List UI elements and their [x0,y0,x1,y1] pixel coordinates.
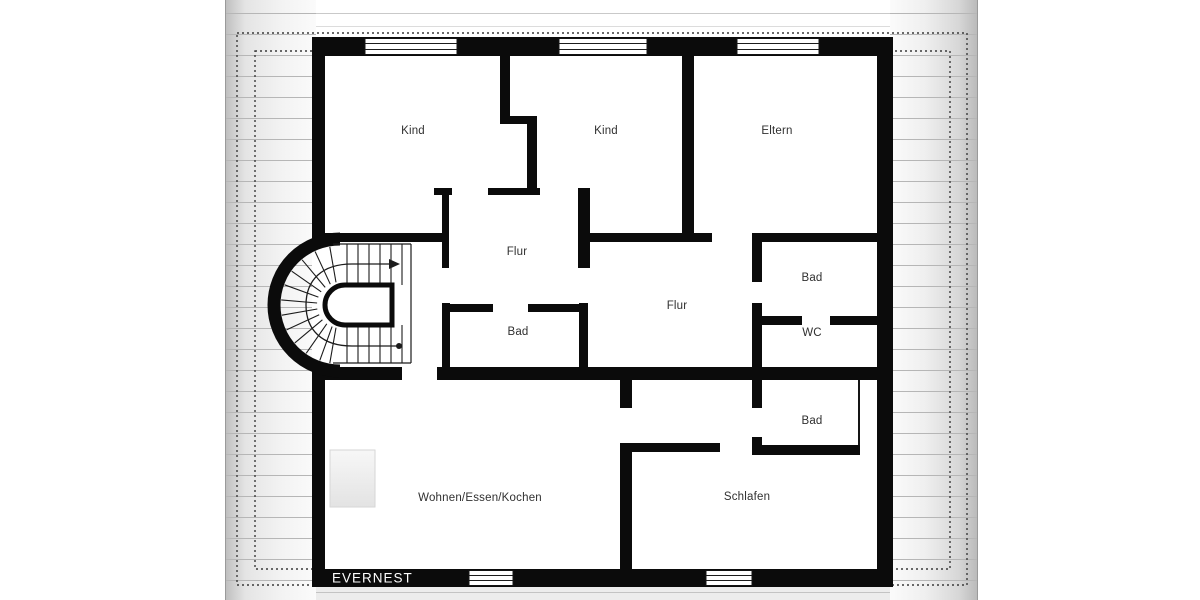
wall-bad-top-north [752,233,877,242]
room-label-wohnen: Wohnen/Essen/Kochen [418,492,542,504]
wall-wohnen-schlafen [620,443,632,569]
window-south-1 [469,571,513,586]
floorplan-drawing [0,0,1200,600]
room-label-flur-1: Flur [507,246,528,258]
room-label-bad-bottom: Bad [801,415,822,427]
wall-badbottom-south [752,445,860,455]
stair-inner-island [325,285,392,325]
wall-flur1-east [578,188,590,268]
room-label-wc: WC [802,327,822,339]
wall-badmid-east [579,303,588,367]
room-label-kind-1: Kind [401,125,425,137]
window-south-2 [706,571,752,586]
wall-badwc-west-upper [752,242,762,282]
wall-central-horizontal [437,367,877,380]
window-north-1 [365,39,457,55]
roof-surface-right [890,0,978,600]
wall-badmid-west [442,303,450,367]
room-label-bad-mid: Bad [507,326,528,338]
room-label-flur-2: Flur [667,300,688,312]
wall-flur1-west [442,188,449,268]
wall-badbottom-west-upper [752,380,762,408]
stair-walkline-start-dot [396,343,402,349]
wall-badmid-north-right [528,304,586,312]
wall-badmid-north-left [442,304,493,312]
wall-kind-divider-upper [500,56,510,124]
wall-kind2-eltern-divider [682,56,694,242]
roof-strip-top [225,14,978,27]
wall-wohnen-schlafen-stub [620,380,632,408]
room-label-kind-2: Kind [594,125,618,137]
room-label-bad-top: Bad [801,272,822,284]
wall-badwc-divider-right [830,316,877,325]
wall-east [877,37,893,587]
wall-eltern-south [578,233,712,242]
wall-kind-divider-foot [488,188,540,195]
floorplan-canvas: Kind Kind Eltern Flur Flur Bad Bad WC Ba… [0,0,1200,600]
wall-west-upper [312,37,325,240]
wall-kind-divider-lower [527,116,537,195]
wall-west-lower [312,366,325,587]
room-label-schlafen: Schlafen [724,491,770,503]
window-north-3 [737,39,819,55]
chimney-block [330,450,375,507]
building-footprint [312,37,893,587]
brand-label: EVERNEST [332,571,413,586]
wall-badwc-divider-left [752,316,802,325]
roof-strip-bottom [225,587,978,600]
wall-schlafen-north [632,443,720,452]
room-label-eltern: Eltern [761,125,792,137]
window-north-2 [559,39,647,55]
wall-badwc-west-lower [752,303,762,367]
